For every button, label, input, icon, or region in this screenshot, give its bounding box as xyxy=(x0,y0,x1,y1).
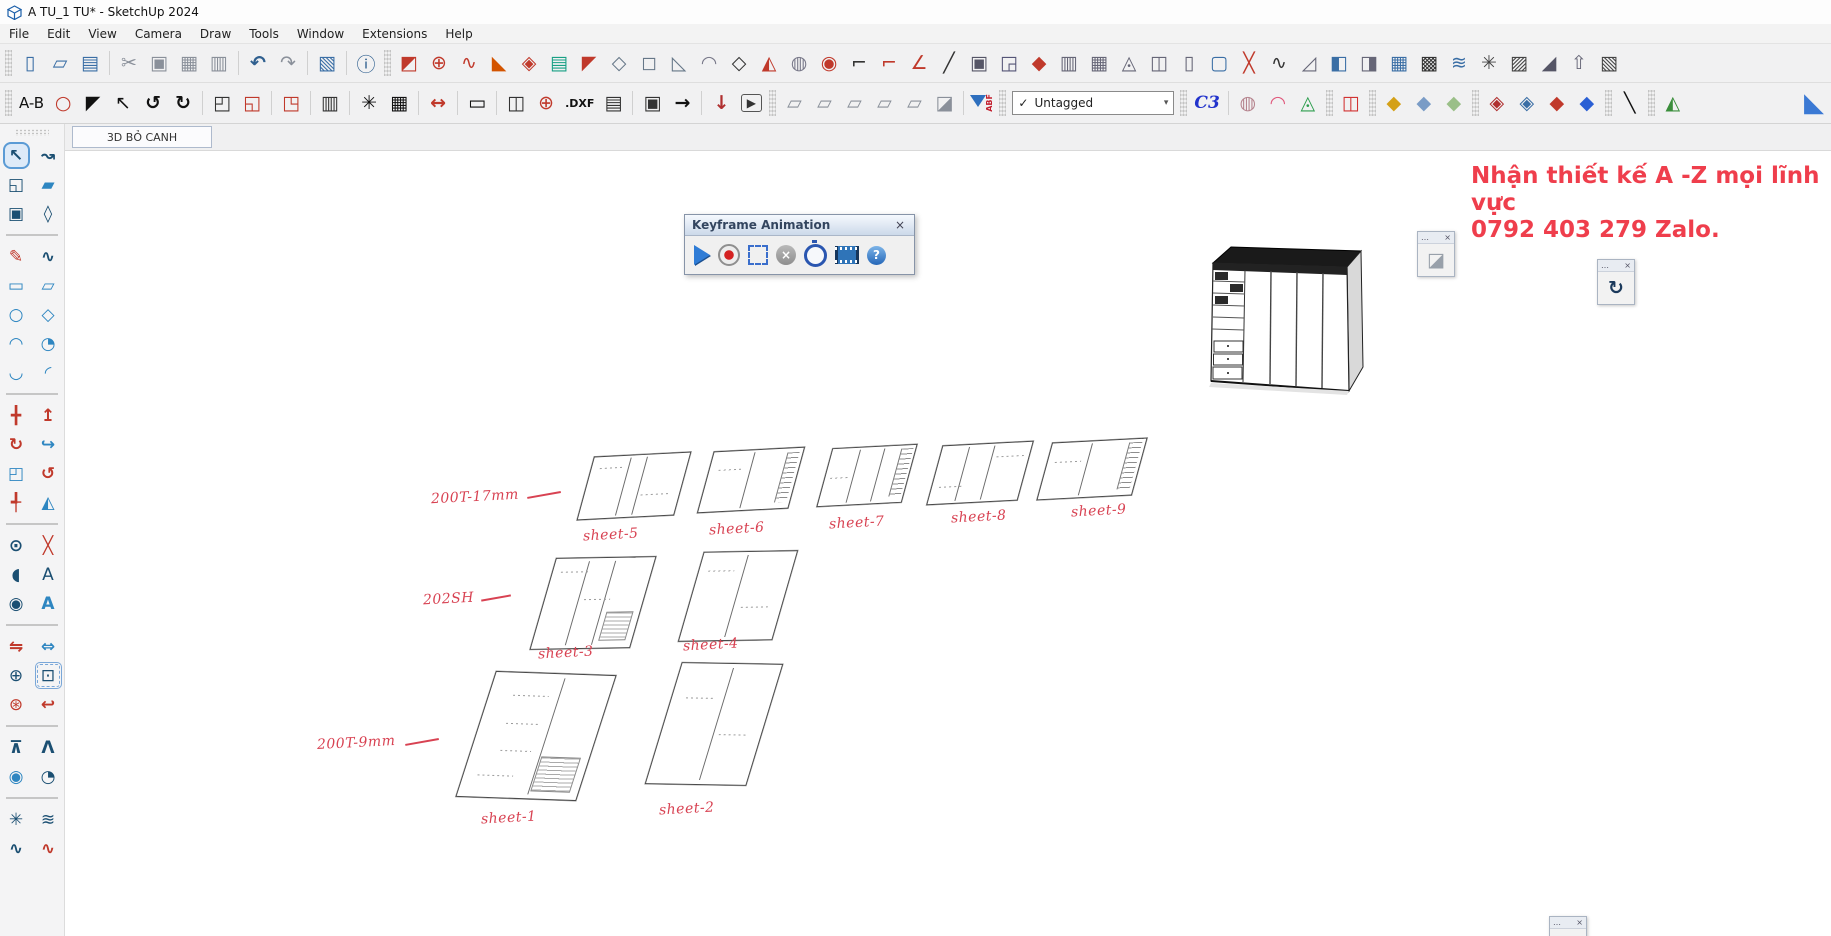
select-tool[interactable]: ↖ xyxy=(3,142,30,169)
walk-tool[interactable]: Λ xyxy=(35,734,62,761)
toolbar-second: A-B○◤↖↺↻◰◱◳▥✳▦↔▭◫⊕.DXF▤▣→↓▶▱▱▱▱▱◪ABF✓Unt… xyxy=(0,82,1831,124)
position-camera-tool[interactable]: ⊼ xyxy=(3,734,30,761)
menu-edit[interactable]: Edit xyxy=(38,26,79,42)
mini-palette-a-header[interactable]: … × xyxy=(1418,232,1454,244)
title-bar: A TU_1 TU* - SketchUp 2024 xyxy=(0,0,1831,24)
mini-palette-b: … × ↻ xyxy=(1597,259,1635,305)
corner-angle-icon[interactable]: ⌐ xyxy=(874,48,904,78)
advert-watermark: Nhận thiết kế A -Z mọi lĩnh vực 0792 403… xyxy=(1471,163,1831,244)
arc-add-icon[interactable]: ⊕ xyxy=(424,48,454,78)
circle-tool[interactable]: ○ xyxy=(3,301,30,328)
palette-row: ◉A xyxy=(3,590,62,617)
menu-camera[interactable]: Camera xyxy=(126,26,191,42)
sheet-6-label: sheet-6 xyxy=(709,520,765,539)
solid-blob-icon[interactable]: ◻ xyxy=(634,48,664,78)
scene-tab-label: 3D BỎ CANH xyxy=(107,131,177,144)
chevron-stack-icon[interactable]: ≋ xyxy=(1444,48,1474,78)
pie-tool[interactable]: ◔ xyxy=(35,330,62,357)
model-info-icon[interactable]: ⓘ xyxy=(351,48,381,78)
main-area: ↖↝◱▰▣◊✎∿▭▱○◇◠◔◡◜╋↥↻↪◰↺╃◭⊙╳◖A◉A⇋⇔⊕⊡⊛↩⊼Λ◉◔… xyxy=(0,124,1831,936)
tags-dropdown-value: Untagged xyxy=(1034,96,1093,110)
stop-button[interactable]: × xyxy=(776,245,796,265)
ramp-3d-icon[interactable]: ◿ xyxy=(1294,48,1324,78)
palette-row: ◖A xyxy=(3,561,62,588)
play-button[interactable] xyxy=(694,245,710,265)
toolbar-grip[interactable] xyxy=(1369,90,1376,116)
palette-row: ╋↥ xyxy=(3,402,62,429)
new-file-icon[interactable]: ▯ xyxy=(15,48,45,78)
delete-icon[interactable]: ▥ xyxy=(204,48,234,78)
ext-spiral-tool[interactable]: ✳ xyxy=(3,806,30,833)
palette-row: ∿∿ xyxy=(3,835,62,862)
view-top-icon[interactable]: ▱ xyxy=(809,88,839,118)
toolbar-separator xyxy=(457,91,458,115)
sheet-9-shape[interactable] xyxy=(1036,438,1147,501)
sphere-pull-icon[interactable]: ◉ xyxy=(814,48,844,78)
cursor-tool-icon[interactable]: ↖ xyxy=(108,88,138,118)
timer-button[interactable] xyxy=(804,244,827,267)
rotated-rectangle-tool[interactable]: ▱ xyxy=(35,272,62,299)
group-label-200T-9mm: 200T-9mm xyxy=(317,733,396,753)
export-movie-button[interactable] xyxy=(835,246,859,264)
toolbar-grip[interactable] xyxy=(1472,90,1479,116)
advert-line2: 0792 403 279 Zalo. xyxy=(1471,217,1831,244)
orbit-flip-tool[interactable]: ⇋ xyxy=(3,633,30,660)
sheet-6-shape[interactable] xyxy=(697,447,805,514)
zoom-region-icon[interactable]: ○ xyxy=(48,88,78,118)
grip-dots: … xyxy=(1421,234,1429,242)
curve-swoosh-icon[interactable]: ╱ xyxy=(934,48,964,78)
toolbar-separator xyxy=(346,51,347,75)
leader-line xyxy=(405,738,439,745)
palette-divider xyxy=(6,624,58,626)
mini-palette-b-header[interactable]: … × xyxy=(1598,260,1634,272)
pink-lasso-icon[interactable]: ◠ xyxy=(1263,88,1293,118)
close-icon[interactable]: × xyxy=(1576,919,1583,927)
tag-tool[interactable]: ◊ xyxy=(35,200,62,227)
select-keyframes-button[interactable] xyxy=(748,245,768,265)
palette-row: ⇋⇔ xyxy=(3,633,62,660)
menu-window[interactable]: Window xyxy=(288,26,353,42)
palette-row: ◱▰ xyxy=(3,171,62,198)
keyframe-dialog-titlebar[interactable]: Keyframe Animation × xyxy=(685,215,914,236)
sheet-7-shape[interactable] xyxy=(816,444,917,507)
mirror-tool[interactable]: ◭ xyxy=(35,489,62,516)
toolbar-separator xyxy=(310,91,311,115)
toolbar-grip[interactable] xyxy=(1648,90,1655,116)
paste-icon[interactable]: ▦ xyxy=(174,48,204,78)
palette-row: ◰↺ xyxy=(3,460,62,487)
keyframe-dialog-body: ×? xyxy=(685,236,914,274)
paint-bucket-tool[interactable]: ◱ xyxy=(3,171,30,198)
layers-stack-icon[interactable]: ▤ xyxy=(544,48,574,78)
stamp-tool-icon[interactable]: ◤ xyxy=(78,88,108,118)
right-column: 3D BỎ CANH Keyframe Animation × ×? Nhận … xyxy=(65,124,1831,936)
prism-green-icon[interactable]: ◬ xyxy=(1293,88,1323,118)
sheet-9-label: sheet-9 xyxy=(1071,502,1127,521)
sheet-2-shape[interactable] xyxy=(645,662,784,786)
grip-dots: … xyxy=(1601,262,1609,270)
toolbar-main: ▯▱▤✂▣▦▥↶↷▧ⓘ◩⊕∿◣◈▤◤◇◻◺◠◇◭◍◉⌐⌐∠╱▣◲◆▥▦◬◫▯▢╳… xyxy=(0,43,1831,82)
cut-icon[interactable]: ✂ xyxy=(114,48,144,78)
zoom-extents-tool[interactable]: ⊛ xyxy=(3,691,30,718)
scale-tool[interactable]: ◰ xyxy=(3,460,30,487)
sheet-8-label: sheet-8 xyxy=(951,508,1007,527)
toolbar-separator xyxy=(496,91,497,115)
download-arrow-icon[interactable]: ↓ xyxy=(706,88,736,118)
chevron-down-icon[interactable]: ▾ xyxy=(1164,98,1169,108)
toolbar-grip[interactable] xyxy=(5,90,12,116)
box-blue-icon[interactable]: ◆ xyxy=(1409,88,1439,118)
palette-row: ⊼Λ xyxy=(3,734,62,761)
palette-row: ◉◔ xyxy=(3,763,62,790)
pipe-curve-icon[interactable]: ◠ xyxy=(694,48,724,78)
palette-row: ▣◊ xyxy=(3,200,62,227)
protractor-tool[interactable]: ◖ xyxy=(3,561,30,588)
wire-diamond-icon[interactable]: ◇ xyxy=(724,48,754,78)
toolbar-grip[interactable] xyxy=(999,90,1006,116)
dashed-outline-icon[interactable]: ◇ xyxy=(604,48,634,78)
palette-divider xyxy=(6,797,58,799)
section-cut-icon[interactable]: ◳ xyxy=(276,88,306,118)
palette-row: ↻↪ xyxy=(3,431,62,458)
sheet-5-shape[interactable] xyxy=(577,452,692,521)
ext-weld-tool[interactable]: ∿ xyxy=(3,835,30,862)
panel-views-icon[interactable]: ◫ xyxy=(501,88,531,118)
check-icon: ✓ xyxy=(1018,96,1028,110)
model-canvas[interactable]: Keyframe Animation × ×? Nhận thiết kế A … xyxy=(65,151,1831,936)
arc-3pt-tool[interactable]: ◜ xyxy=(35,359,62,386)
pillars-3d-icon[interactable]: ▦ xyxy=(1084,48,1114,78)
panel-pair-icon[interactable]: ◫ xyxy=(1144,48,1174,78)
tape-measure-tool[interactable]: ⊙ xyxy=(3,532,30,559)
screw-cross-icon[interactable]: ╳ xyxy=(1234,48,1264,78)
knot-tool-icon[interactable]: ✳ xyxy=(1474,48,1504,78)
toolbar-separator xyxy=(271,91,272,115)
leader-line xyxy=(527,491,561,498)
fan-lines-icon[interactable]: ◢ xyxy=(1534,48,1564,78)
palette-grip[interactable] xyxy=(15,129,49,136)
close-icon[interactable]: × xyxy=(893,218,907,232)
advert-line1: Nhận thiết kế A -Z mọi lĩnh vực xyxy=(1471,163,1831,217)
axes-compass-tool[interactable]: ◉ xyxy=(3,590,30,617)
slope-hatch-icon[interactable]: ▨ xyxy=(1504,48,1534,78)
text-tool[interactable]: A xyxy=(35,561,62,588)
mini-palette-c: … × xyxy=(1549,916,1587,936)
brush-fan-icon[interactable]: ◬ xyxy=(1114,48,1144,78)
s-box-blue-icon[interactable]: ◆ xyxy=(1572,88,1602,118)
move-tool[interactable]: ╋ xyxy=(3,402,30,429)
sheet-5-label: sheet-5 xyxy=(583,526,639,545)
look-target-tool[interactable]: ◔ xyxy=(35,763,62,790)
palette-row: ✳≋ xyxy=(3,806,62,833)
previous-view-tool[interactable]: ↩ xyxy=(35,691,62,718)
rect-frame-icon[interactable]: ▭ xyxy=(462,88,492,118)
abf-filter-button[interactable]: ABF xyxy=(970,94,994,112)
toolbar-separator xyxy=(349,91,350,115)
s-hatch-blue-icon[interactable]: ◈ xyxy=(1512,88,1542,118)
cylinder-tool-icon[interactable]: ◍ xyxy=(784,48,814,78)
sheet-3-label: sheet-3 xyxy=(538,644,594,663)
weave-grid-icon[interactable]: ▩ xyxy=(1414,48,1444,78)
sheet-2-label: sheet-2 xyxy=(659,800,715,819)
palette-row: ✎∿ xyxy=(3,243,62,270)
close-icon[interactable]: × xyxy=(1444,234,1451,242)
arc-tool[interactable]: ◠ xyxy=(3,330,30,357)
grip-dots: … xyxy=(1553,919,1561,927)
look-around-tool[interactable]: ◉ xyxy=(3,763,30,790)
toolbar-separator xyxy=(307,51,308,75)
push-pull-tool[interactable]: ↥ xyxy=(35,402,62,429)
toolbar-separator xyxy=(418,91,419,115)
hatch-columns-icon[interactable]: ▥ xyxy=(315,88,345,118)
save-icon[interactable]: ▤ xyxy=(75,48,105,78)
building-3d-icon[interactable]: ▦ xyxy=(1384,48,1414,78)
section-fill-icon[interactable]: ◱ xyxy=(237,88,267,118)
pan-tool[interactable]: ⇔ xyxy=(35,633,62,660)
menu-draw[interactable]: Draw xyxy=(191,26,240,42)
menu-file[interactable]: File xyxy=(0,26,38,42)
toolbar-grip[interactable] xyxy=(769,90,776,116)
panel-fold-icon[interactable]: ◲ xyxy=(994,48,1024,78)
toolbar-separator xyxy=(1228,91,1229,115)
polygon-tool[interactable]: ◇ xyxy=(35,301,62,328)
eraser-tool[interactable]: ▰ xyxy=(35,171,62,198)
copy-icon[interactable]: ▣ xyxy=(144,48,174,78)
sheet-3-shape[interactable] xyxy=(529,556,656,650)
toolbar-separator xyxy=(632,91,633,115)
print-layout-icon[interactable]: ▤ xyxy=(598,88,628,118)
s-flag-red-icon[interactable]: ◈ xyxy=(1482,88,1512,118)
head-sculpt-icon[interactable]: ◍ xyxy=(1233,88,1263,118)
toolbar-grip[interactable] xyxy=(5,50,12,76)
line-draw-icon[interactable]: ╲ xyxy=(1615,88,1645,118)
toolbar-separator xyxy=(238,51,239,75)
abf-label: ABF xyxy=(986,94,994,112)
scene-tab-strip: 3D BỎ CANH xyxy=(65,124,1831,151)
zoom-tool[interactable]: ⊕ xyxy=(3,662,30,689)
camera-cube-icon[interactable]: ◪ xyxy=(929,88,959,118)
group-label-200T-17mm: 200T-17mm xyxy=(431,487,520,508)
window-title: A TU_1 TU* - SketchUp 2024 xyxy=(28,5,199,19)
open-folder-icon[interactable]: ▱ xyxy=(45,48,75,78)
palette-row: ◠◔ xyxy=(3,330,62,357)
palette-row: ◡◜ xyxy=(3,359,62,386)
wardrobe-model[interactable] xyxy=(1197,241,1367,407)
sheet-1-shape[interactable] xyxy=(455,671,616,801)
view-front-icon[interactable]: ▱ xyxy=(839,88,869,118)
menu-help[interactable]: Help xyxy=(436,26,481,42)
window-frame-icon[interactable]: ◧ xyxy=(1324,48,1354,78)
sketchup-logo-icon xyxy=(7,5,22,20)
line-tool[interactable]: ✎ xyxy=(3,243,30,270)
toolbar-grip[interactable] xyxy=(384,50,391,76)
palette-divider xyxy=(6,523,58,525)
rotate-ccw-icon[interactable]: ↺ xyxy=(138,88,168,118)
palette-row: ▭▱ xyxy=(3,272,62,299)
zigzag-tool-icon[interactable]: ∿ xyxy=(1264,48,1294,78)
ext-profile-tool[interactable]: ∿ xyxy=(35,835,62,862)
sheet-4-label: sheet-4 xyxy=(683,636,739,655)
menu-tools[interactable]: Tools xyxy=(240,26,288,42)
box-yellow-icon[interactable]: ◆ xyxy=(1379,88,1409,118)
palette-divider xyxy=(6,393,58,395)
view-iso-icon[interactable]: ▱ xyxy=(779,88,809,118)
rotate-cw-icon[interactable]: ↻ xyxy=(168,88,198,118)
weld-check-icon[interactable]: ◈ xyxy=(514,48,544,78)
play-video-icon[interactable]: ▶ xyxy=(736,88,766,118)
view-back-icon[interactable]: ▱ xyxy=(899,88,929,118)
table-grid-icon[interactable]: ▦ xyxy=(384,88,414,118)
dxf-label[interactable]: .DXF xyxy=(561,97,598,110)
palette-row: ⊕⊡ xyxy=(3,662,62,689)
keyframe-dialog-title: Keyframe Animation xyxy=(692,218,830,232)
c3-logo[interactable]: C3 xyxy=(1190,93,1223,113)
arrow-right-icon[interactable]: → xyxy=(667,88,697,118)
follow-me-tool[interactable]: ↪ xyxy=(35,431,62,458)
toolbar-separator xyxy=(701,91,702,115)
sheet-4-shape[interactable] xyxy=(678,550,798,642)
group-label-202SH: 202SH xyxy=(423,590,475,609)
toolbar-separator xyxy=(109,51,110,75)
box-green-icon[interactable]: ◆ xyxy=(1439,88,1469,118)
scene-tab[interactable]: 3D BỎ CANH xyxy=(72,126,212,148)
blob-cut-icon[interactable]: ◺ xyxy=(664,48,694,78)
undo-icon[interactable]: ↶ xyxy=(243,48,273,78)
arc-2pt-tool[interactable]: ◡ xyxy=(3,359,30,386)
toolbar-grip[interactable] xyxy=(1180,90,1187,116)
view-side-icon[interactable]: ▱ xyxy=(869,88,899,118)
shape-tool-icon[interactable]: ◪ xyxy=(1418,244,1454,276)
lasso-tool[interactable]: ↝ xyxy=(35,142,62,169)
fold-arrow-icon[interactable]: ⇧ xyxy=(1564,48,1594,78)
dimension-tool[interactable]: ╳ xyxy=(35,532,62,559)
palette-row: ⊙╳ xyxy=(3,532,62,559)
freehand-tool[interactable]: ∿ xyxy=(35,243,62,270)
bezier-curve-icon[interactable]: ∿ xyxy=(454,48,484,78)
mini-palette-c-header[interactable]: … × xyxy=(1550,917,1586,929)
ext-curves-tool[interactable]: ≋ xyxy=(35,806,62,833)
toolbar-separator xyxy=(202,91,203,115)
record-button[interactable] xyxy=(718,244,740,266)
redo-icon[interactable]: ↷ xyxy=(273,48,303,78)
columns-3d-icon[interactable]: ▥ xyxy=(1054,48,1084,78)
s-diamond-red-icon[interactable]: ◆ xyxy=(1542,88,1572,118)
close-icon[interactable]: × xyxy=(1624,262,1631,270)
palette-divider xyxy=(6,234,58,236)
help-button[interactable]: ? xyxy=(867,246,886,265)
settings-gear-icon[interactable]: ✳ xyxy=(354,88,384,118)
rectangle-tool[interactable]: ▭ xyxy=(3,272,30,299)
tool-palette: ↖↝◱▰▣◊✎∿▭▱○◇◠◔◡◜╋↥↻↪◰↺╃◭⊙╳◖A◉A⇋⇔⊕⊡⊛↩⊼Λ◉◔… xyxy=(0,124,65,936)
frame-blue-icon[interactable]: ▢ xyxy=(1204,48,1234,78)
3d-text-tool[interactable]: A xyxy=(35,590,62,617)
palette-row: ╃◭ xyxy=(3,489,62,516)
box-3d-icon[interactable]: ▣ xyxy=(637,88,667,118)
angle-tool-icon[interactable]: ∠ xyxy=(904,48,934,78)
door-panel-icon[interactable]: ▯ xyxy=(1174,48,1204,78)
blue-flat-arrow-icon[interactable]: ◣ xyxy=(1797,88,1831,118)
palette-divider xyxy=(6,725,58,727)
sheet-7-label: sheet-7 xyxy=(829,514,885,533)
diag-hatch-icon[interactable]: ▧ xyxy=(1594,48,1624,78)
marker-red-icon[interactable]: ◫ xyxy=(1336,88,1366,118)
toolbar-grip[interactable] xyxy=(1326,90,1333,116)
paste-in-place-icon[interactable]: ◩ xyxy=(394,48,424,78)
wedge-red-icon[interactable]: ◭ xyxy=(754,48,784,78)
orbit-tool-icon[interactable]: ↻ xyxy=(1598,272,1634,304)
door-frame-icon[interactable]: ◨ xyxy=(1354,48,1384,78)
section-plane-icon[interactable]: ◰ xyxy=(207,88,237,118)
toolbar-grip[interactable] xyxy=(1605,90,1612,116)
cube-frame-icon[interactable]: ▣ xyxy=(964,48,994,78)
menu-view[interactable]: View xyxy=(79,26,125,42)
zoom-window-tool[interactable]: ⊡ xyxy=(35,662,62,689)
toolbar-separator xyxy=(963,91,964,115)
mini-palette-a: … × ◪ xyxy=(1417,231,1455,277)
corner-line-icon[interactable]: ⌐ xyxy=(844,48,874,78)
sheet-1-label: sheet-1 xyxy=(481,809,537,828)
menu-extensions[interactable]: Extensions xyxy=(353,26,436,42)
move-dimension-icon[interactable]: ↔ xyxy=(423,88,453,118)
tags-dropdown[interactable]: ✓Untagged▾ xyxy=(1012,91,1174,115)
rotate-tool[interactable]: ↻ xyxy=(3,431,30,458)
keyframe-animation-dialog: Keyframe Animation × ×? xyxy=(684,214,915,275)
palette-row: ⊛↩ xyxy=(3,691,62,718)
sheet-8-shape[interactable] xyxy=(926,441,1034,506)
palette-row: ○◇ xyxy=(3,301,62,328)
palette-row: ↖↝ xyxy=(3,142,62,169)
palette-groups: ↖↝◱▰▣◊✎∿▭▱○◇◠◔◡◜╋↥↻↪◰↺╃◭⊙╳◖A◉A⇋⇔⊕⊡⊛↩⊼Λ◉◔… xyxy=(3,141,62,863)
offset-tool[interactable]: ↺ xyxy=(35,460,62,487)
menu-bar: FileEditViewCameraDrawToolsWindowExtensi… xyxy=(0,24,1831,43)
print-icon[interactable]: ▧ xyxy=(312,48,342,78)
ab-label[interactable]: A-B xyxy=(15,94,48,112)
symmetry-leaves-icon[interactable]: ◭ xyxy=(1658,88,1688,118)
leader-line xyxy=(481,594,511,601)
axe-tool-icon[interactable]: ◤ xyxy=(574,48,604,78)
diamond-red-icon[interactable]: ◆ xyxy=(1024,48,1054,78)
eraser-wedge-icon[interactable]: ◣ xyxy=(484,48,514,78)
axes-tool[interactable]: ╃ xyxy=(3,489,30,516)
components-tool[interactable]: ▣ xyxy=(3,200,30,227)
target-circle-icon[interactable]: ⊕ xyxy=(531,88,561,118)
